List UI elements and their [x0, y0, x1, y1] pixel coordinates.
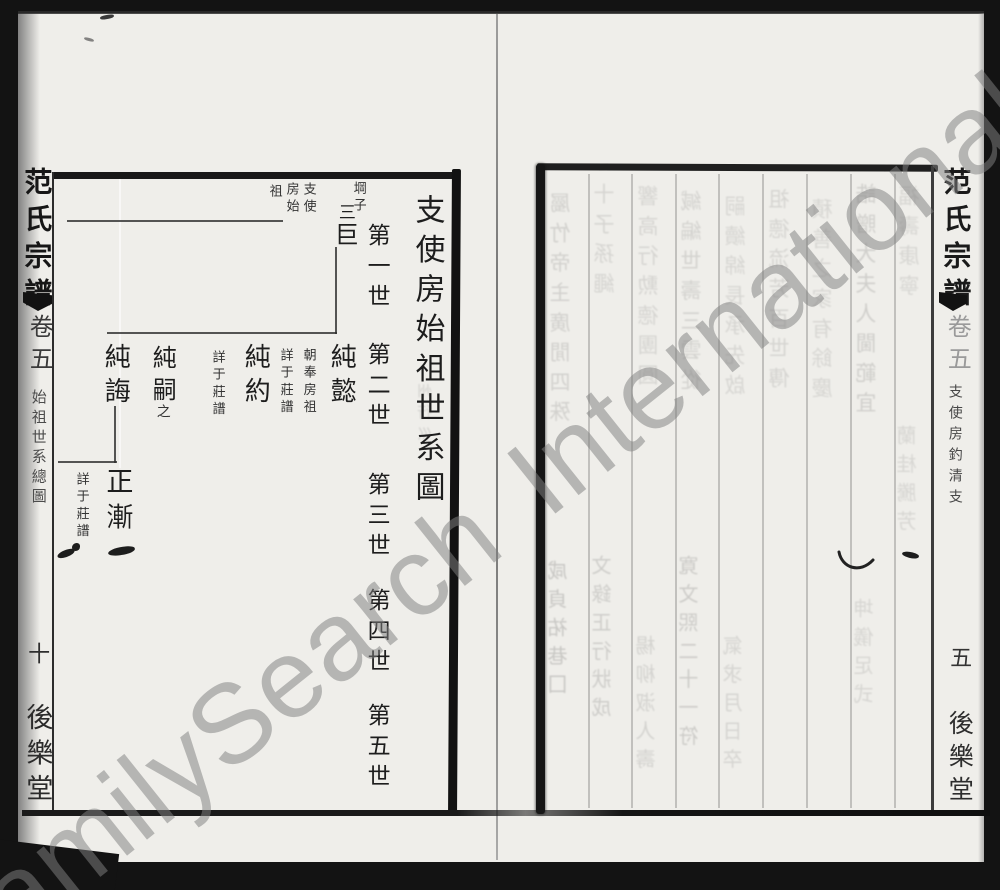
pen-mark [836, 548, 876, 576]
gen2-name-chunsi: 純嗣 [148, 345, 173, 408]
chart-line [58, 461, 117, 463]
gen2-name-chunhui: 純誨 [102, 343, 129, 412]
founder-branch-note: 房始 [285, 182, 299, 216]
gen2-name-chunyue: 純約 [242, 343, 269, 412]
generation-header-1: 第一世 [364, 223, 388, 314]
descent-line [114, 406, 116, 463]
bleed-through-column: 蘭桂騰芳 [899, 425, 920, 539]
left-spine-section: 始祖世系總圖 [29, 389, 45, 508]
right-spine-hall-name: 後樂堂 [945, 710, 971, 809]
bleed-through-column: 坤儀足式 [856, 598, 877, 712]
generation-header-2: 第二世 [364, 342, 388, 433]
bleed-through-column: 十子孫繩 [594, 183, 616, 302]
column-rule [631, 174, 633, 808]
bleed-through-column: 楊柳淑人壽 [638, 635, 659, 777]
gen2-note: 詳于莊譜 [211, 350, 225, 419]
right-spine-section: 支使房釣清支 [946, 384, 961, 510]
chart-line [67, 220, 283, 222]
left-frame-left-border [52, 172, 54, 813]
chart-title: 支使房始祖世系圖 [411, 194, 443, 511]
gen3-note: 詳于莊譜 [75, 472, 89, 541]
generation-header-5: 第五世 [364, 703, 388, 794]
bleed-through-column: 咸貞祐巷囗 [550, 560, 571, 702]
bleed-through-column: 寬文熙二十一符 [681, 555, 702, 754]
left-frame-top-border [52, 172, 460, 179]
page-top-edge [18, 11, 984, 14]
sibling-line [107, 332, 337, 334]
gen2-note: 詳于莊譜 [279, 348, 293, 417]
founder-branch-note: 祖 [268, 184, 282, 201]
gen3-name-zhengjian: 正漸 [103, 467, 131, 538]
book-scan: 范氏宗譜 卷五 始祖世系總圖 十 後樂堂 支使房始祖世系圖 第一世 第二世 第三… [0, 0, 1000, 890]
bleed-through-column: 氣求月日卒 [725, 635, 746, 777]
right-frame-right-border [931, 166, 934, 814]
founder-branch-note: 支使 [302, 182, 316, 216]
right-spine-folio-number: 五 [948, 646, 971, 675]
right-spine-volume: 卷五 [943, 314, 968, 377]
column-rule [675, 174, 677, 808]
descent-line [335, 247, 337, 334]
gen2-note: 朝奉房祖 [302, 348, 316, 417]
gen2-name-chunsi-suffix: 之 [154, 404, 169, 422]
gen2-name-chunyi: 純懿 [328, 343, 355, 412]
left-spine-volume: 卷五 [25, 314, 50, 377]
bleed-through-column: 文錄正行狀成 [594, 555, 615, 725]
left-spine-folio-number: 十 [26, 642, 49, 671]
founder-name: 巨 [330, 222, 355, 254]
bleed-through-column: 州行巛 [419, 383, 435, 447]
